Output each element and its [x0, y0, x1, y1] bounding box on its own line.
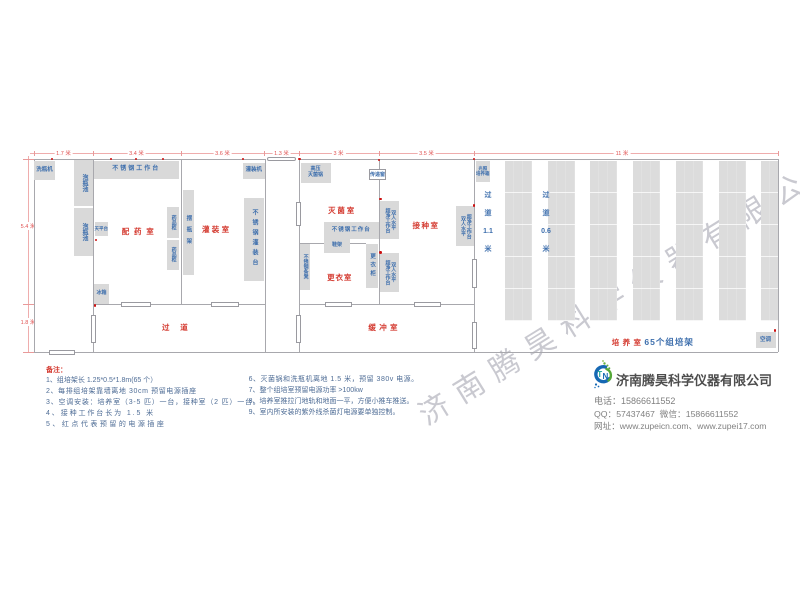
svg-text:N: N: [603, 372, 609, 381]
svg-text:T: T: [597, 370, 602, 379]
